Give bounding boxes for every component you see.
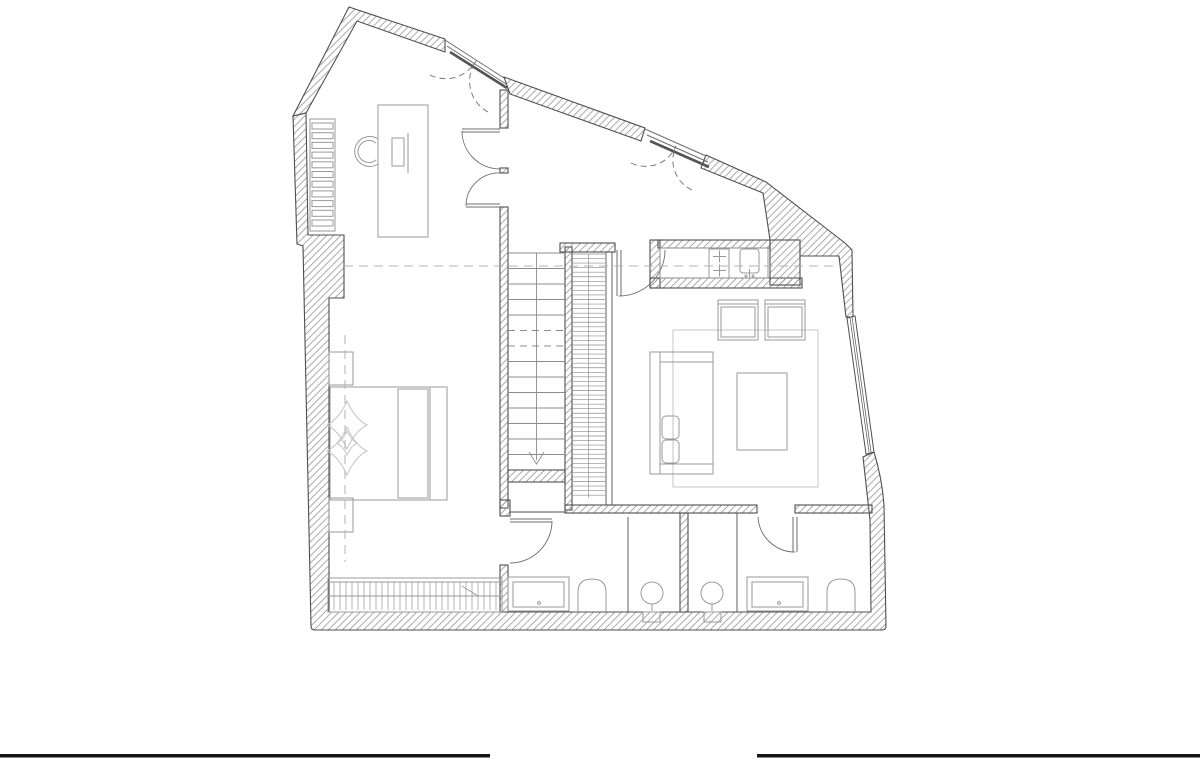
window-glass-line <box>850 318 869 452</box>
desk-chair-inner <box>358 141 376 163</box>
window-glass-line <box>852 317 871 452</box>
crop-mark-line-left <box>0 754 490 758</box>
bedspread-diamond <box>327 427 367 475</box>
wall-kitchen-north <box>658 240 770 248</box>
sofa-cushion <box>662 416 679 439</box>
generated-bar <box>312 201 333 207</box>
wall-living-bath-right <box>795 505 872 513</box>
toilet-left <box>578 579 606 612</box>
wall-top-apex <box>504 77 645 141</box>
interior-walls <box>500 90 872 612</box>
entrance-double-door-hall <box>631 129 709 190</box>
generated-bar <box>312 172 333 178</box>
nightstand-top <box>329 352 353 385</box>
wall-living-bath-left <box>565 505 757 513</box>
sofa-cushion <box>662 440 679 463</box>
armchair-left <box>718 300 758 340</box>
wall-top-right <box>701 155 853 317</box>
floor-plan-drawing <box>0 0 1200 768</box>
wall-office-hall-stub <box>500 168 508 173</box>
generated-bar <box>312 142 333 148</box>
generated-bar <box>312 210 333 216</box>
radiator <box>310 119 335 231</box>
wall-kitchen-east-block <box>770 240 800 285</box>
door-swing-arc <box>462 131 500 169</box>
wall-bath-left-west <box>500 565 508 612</box>
crop-marks <box>0 754 1200 758</box>
door-swing-arc <box>466 173 500 206</box>
wall-bathroom-divider <box>680 513 688 612</box>
wall-stair-top-cap <box>560 243 615 252</box>
living-room-furniture <box>650 300 818 487</box>
office-door-lower <box>466 173 500 207</box>
staircase <box>508 253 605 498</box>
kitchen-sink <box>740 249 759 277</box>
rug <box>673 330 818 487</box>
radiator-bars <box>312 123 333 226</box>
generated-bar <box>312 162 333 168</box>
stove <box>709 249 729 278</box>
wall-landing-block <box>500 500 510 516</box>
monitor <box>392 138 404 166</box>
bed-pillow-band <box>398 389 428 498</box>
floor-plan-page <box>0 0 1200 768</box>
office-furniture <box>310 105 428 237</box>
armchair-right <box>765 300 805 340</box>
generated-bar <box>312 152 333 158</box>
kitchen-fixtures <box>660 248 768 278</box>
vanity-right-drain <box>778 602 781 605</box>
toilet-right <box>827 579 855 612</box>
generated-bar <box>312 133 333 139</box>
window-frame <box>847 316 874 454</box>
door-swing-arc <box>758 517 795 552</box>
vanity-left-basin <box>513 582 564 607</box>
generated-bar <box>312 181 333 187</box>
wall-left-bottom-right <box>293 113 886 630</box>
bedspread-diamond-small <box>337 431 357 455</box>
bed-headboard <box>430 387 447 500</box>
wardrobe-tick <box>462 586 478 596</box>
bedroom-furniture <box>327 335 502 612</box>
coffee-table <box>737 373 787 450</box>
generated-bar <box>312 191 333 197</box>
bedspread-diamond <box>327 401 367 449</box>
wardrobe <box>328 578 502 612</box>
bathroom-right-door <box>758 517 797 552</box>
vanity-left-drain <box>538 602 541 605</box>
nightstand-bottom <box>329 498 353 532</box>
generated-bar <box>312 220 333 226</box>
desk <box>378 105 428 237</box>
wall-top-left <box>293 7 445 116</box>
bathroom-left-door <box>510 519 552 563</box>
wall-stair-west <box>500 207 508 508</box>
crop-mark-line-right <box>757 754 1200 758</box>
office-door-upper <box>462 129 500 169</box>
sofa <box>650 352 713 474</box>
door-swing-arc <box>510 521 552 563</box>
wall-office-hall-top <box>500 90 508 128</box>
wall-stair-center <box>565 247 572 510</box>
window-east <box>847 316 874 454</box>
generated-bar <box>312 123 333 129</box>
door-swing-arc <box>470 61 488 112</box>
wall-stair-bottom-cap <box>508 470 565 482</box>
